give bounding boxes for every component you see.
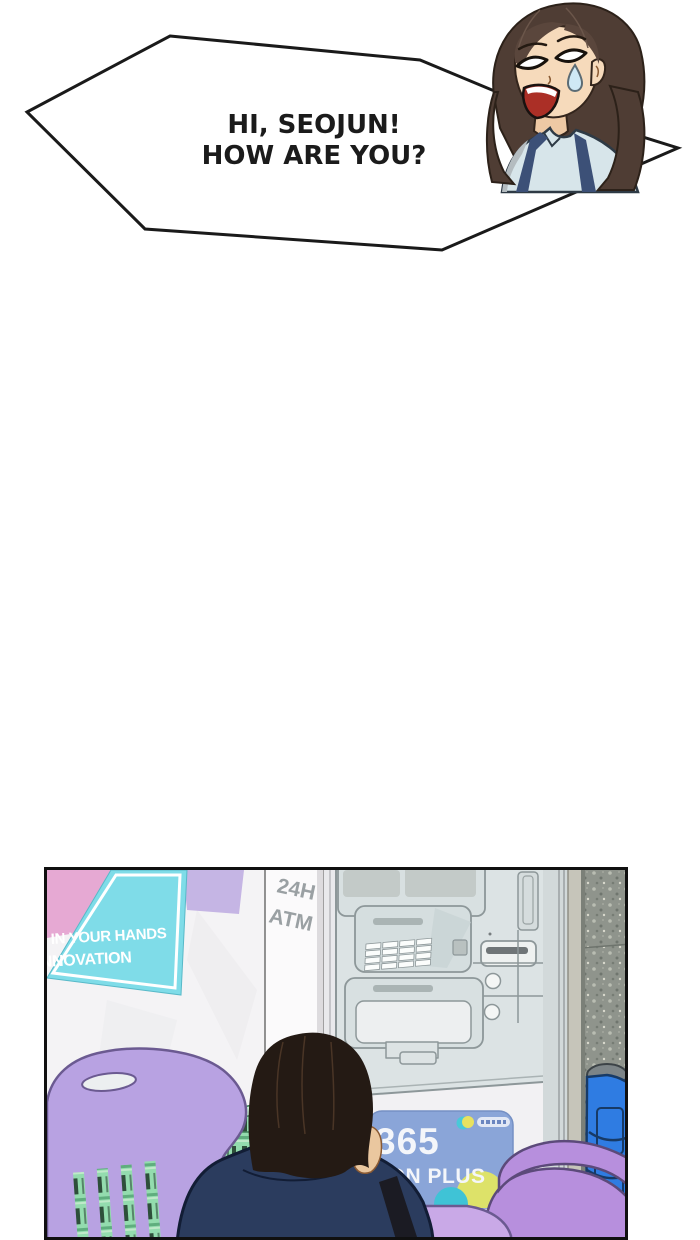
speech-text: HI, SEOJUN! HOW ARE YOU? [194,110,434,172]
atm-screen [343,870,400,897]
atm-vent [518,872,538,930]
atm-screen-2 [405,870,476,897]
atm-recess-slot [373,918,423,925]
atm-round-button-1 [486,974,501,989]
poster-lavender [183,870,244,914]
atm-round-button-2 [485,1005,500,1020]
clerk-avatar [487,3,644,192]
person-hair [249,1033,374,1179]
atm-dispenser-tray [356,1001,471,1043]
story-panel: IN YOUR HANDS NNOVATION 24H ATM [44,867,628,1240]
webtoon-page: HI, SEOJUN! HOW ARE YOU? [0,0,700,1240]
speech-line-1: HI, SEOJUN! [194,110,434,141]
atm-side-button [453,940,467,955]
card-number: 365 [375,1121,440,1162]
top-scene [0,0,700,360]
panel-scene: IN YOUR HANDS NNOVATION 24H ATM [47,870,628,1240]
speech-line-2: HOW ARE YOU? [194,141,434,172]
